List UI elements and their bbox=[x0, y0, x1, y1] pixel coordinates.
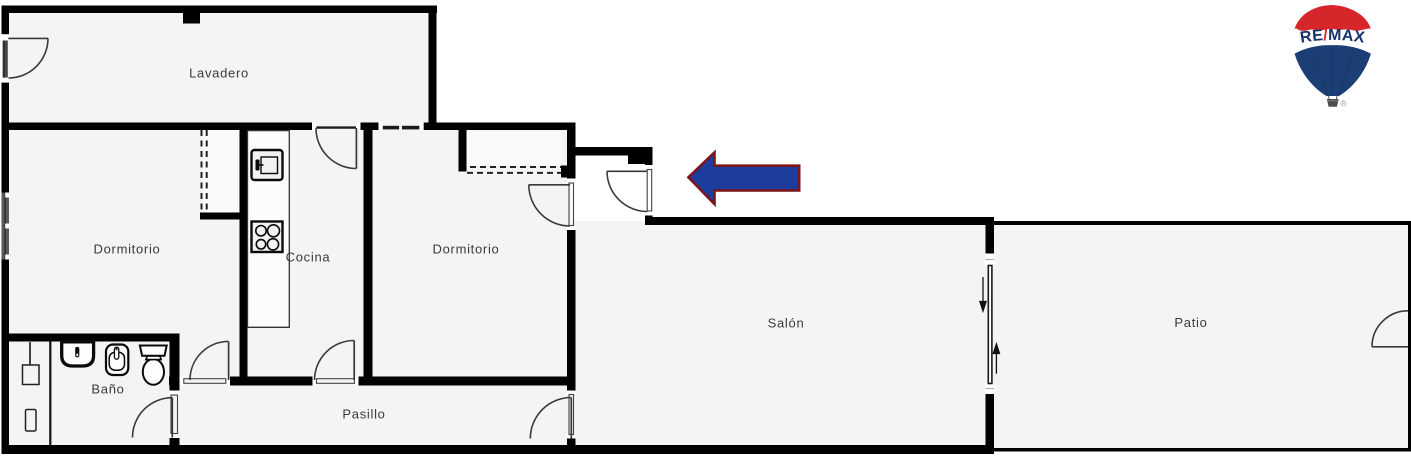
svg-text:Cocina: Cocina bbox=[286, 250, 331, 265]
svg-text:Lavadero: Lavadero bbox=[189, 66, 249, 81]
svg-text:Dormitorio: Dormitorio bbox=[94, 242, 161, 257]
svg-text:Dormitorio: Dormitorio bbox=[433, 242, 500, 257]
svg-text:Baño: Baño bbox=[91, 382, 124, 397]
svg-text:RE/MAX: RE/MAX bbox=[1299, 27, 1366, 47]
svg-text:Pasillo: Pasillo bbox=[342, 407, 385, 422]
svg-text:Patio: Patio bbox=[1174, 315, 1207, 330]
svg-text:®: ® bbox=[1340, 99, 1347, 109]
svg-text:Salón: Salón bbox=[768, 316, 805, 331]
